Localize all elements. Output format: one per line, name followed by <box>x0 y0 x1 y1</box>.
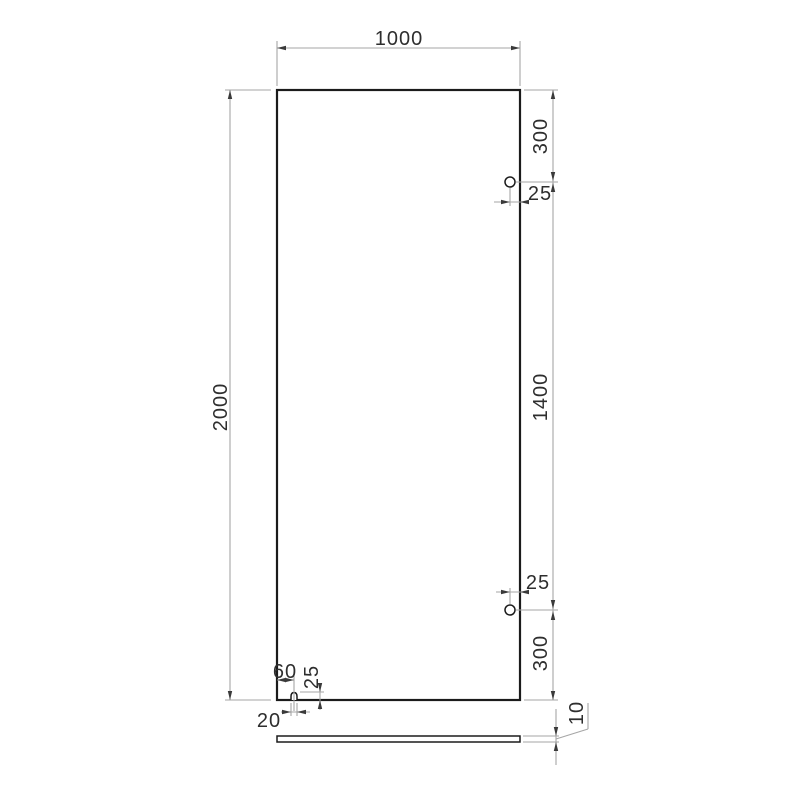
arrowhead-up-icon <box>318 700 322 709</box>
glass-panel-side-view <box>277 736 520 742</box>
dim-notch-from-left-label: 60 <box>273 661 297 683</box>
glass-thickness-profile <box>277 736 520 742</box>
arrowhead-up-icon <box>551 611 555 620</box>
dim-bottom-hole-from-edge: 25 <box>496 572 550 604</box>
arrowhead-right-icon <box>511 46 520 50</box>
hinge-hole-top <box>505 177 515 187</box>
dim-glass-thickness: 10 <box>523 701 588 765</box>
dim-panel-width-label: 1000 <box>375 28 424 50</box>
dim-panel-width: 1000 <box>277 28 520 86</box>
arrowhead-right-icon <box>501 590 510 594</box>
dim-bottom-hole-from-edge-label: 25 <box>526 572 550 594</box>
arrowhead-down-icon <box>554 727 558 736</box>
arrowhead-right-icon <box>282 710 291 714</box>
dim-notch-width-label: 20 <box>257 710 281 732</box>
technical-drawing-canvas: 1000 2000 300 1400 300 25 <box>0 0 800 800</box>
glass-panel-drawing: 1000 2000 300 1400 300 25 <box>0 0 800 800</box>
dim-bottom-hole-from-bottom-label: 300 <box>530 635 552 671</box>
dim-top-hole-from-edge: 25 <box>494 183 552 206</box>
dim-glass-thickness-label: 10 <box>566 701 588 725</box>
dim-notch-depth: 25 <box>300 665 324 710</box>
dim-notch-depth-label: 25 <box>301 665 323 689</box>
arrowhead-left-icon <box>297 710 306 714</box>
glass-panel-outline <box>277 90 520 700</box>
dim-top-hole-from-edge-label: 25 <box>528 183 552 205</box>
arrowhead-down-icon <box>228 691 232 700</box>
arrowhead-up-icon <box>554 742 558 751</box>
dim-panel-height-label: 2000 <box>210 383 232 432</box>
hinge-hole-bottom <box>505 605 515 615</box>
dim-notch-width: 20 <box>257 703 310 732</box>
dim-right-chain: 300 1400 300 <box>516 90 558 700</box>
arrowhead-up-icon <box>551 90 555 99</box>
arrowhead-down-icon <box>551 691 555 700</box>
dim-panel-height: 2000 <box>210 90 271 700</box>
arrowhead-down-icon <box>551 172 555 181</box>
arrowhead-down-icon <box>551 600 555 609</box>
dim-hole-to-hole-label: 1400 <box>530 373 552 422</box>
glass-panel-front-view <box>277 90 520 700</box>
arrowhead-up-icon <box>228 90 232 99</box>
arrowhead-right-icon <box>501 200 510 204</box>
dim-top-hole-from-top-label: 300 <box>530 118 552 154</box>
arrowhead-left-icon <box>277 46 286 50</box>
